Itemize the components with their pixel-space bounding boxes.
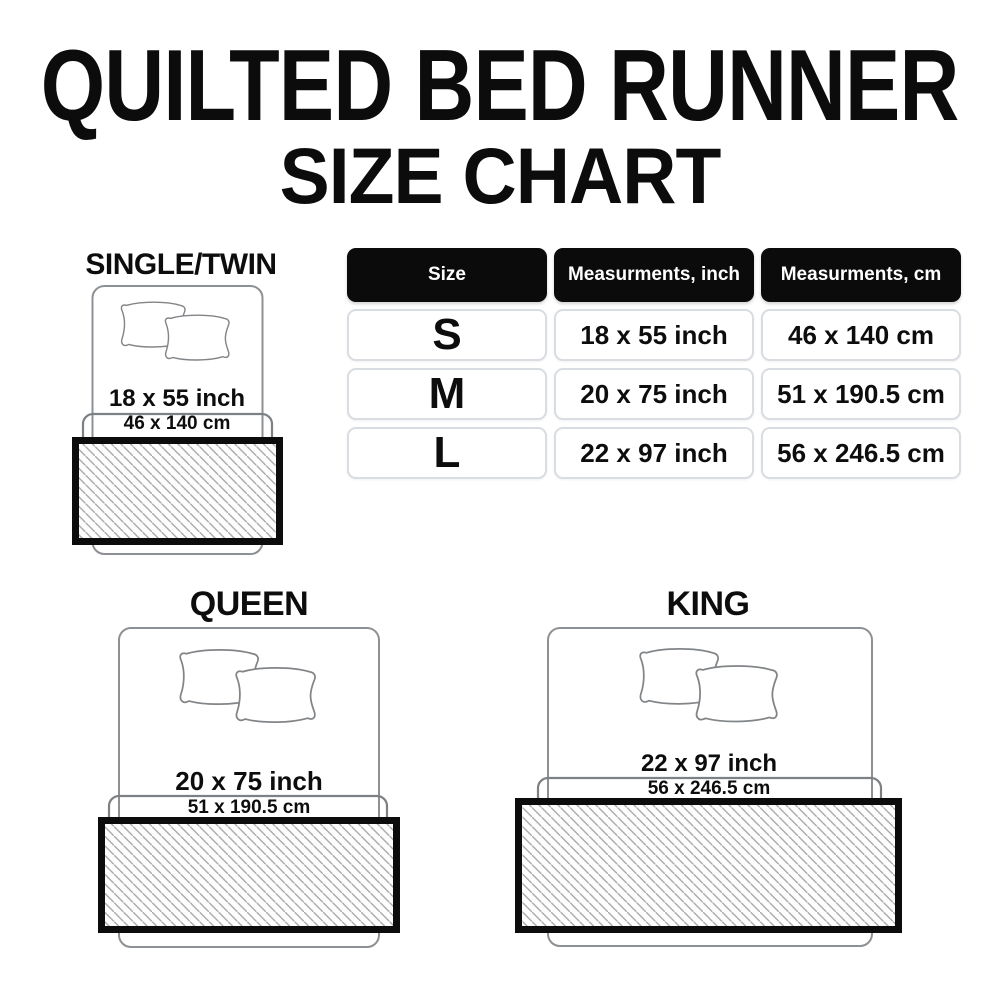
page-title-line2: SIZE CHART — [0, 136, 1000, 216]
page-title-line2-text: SIZE CHART — [280, 130, 721, 222]
page-title-line1: QUILTED BED RUNNER — [0, 30, 1000, 142]
cell-inch-m: 20 x 75 inch — [554, 368, 754, 420]
cell-size-m: M — [347, 368, 547, 420]
bed-runner-hatched — [76, 441, 280, 542]
queen-label: QUEEN — [99, 585, 399, 623]
cell-cm-m: 51 x 190.5 cm — [761, 368, 961, 420]
pillow-icon — [696, 666, 777, 722]
cell-inch-l: 22 x 97 inch — [554, 427, 754, 479]
pillow-icon — [165, 315, 229, 360]
single-twin-inch-measurement: 18 x 55 inch — [57, 385, 297, 413]
queen-cm-measurement: 51 x 190.5 cm — [99, 796, 399, 820]
header-cell-size: Size — [347, 248, 547, 302]
king-inch-measurement: 22 x 97 inch — [559, 750, 859, 778]
cell-cm-l: 56 x 246.5 cm — [761, 427, 961, 479]
king-label: KING — [558, 585, 858, 623]
single-twin-label: SINGLE/TWIN — [31, 246, 331, 284]
queen-inch-measurement: 20 x 75 inch — [99, 767, 399, 795]
bed-runner-hatched — [102, 821, 397, 930]
header-cell-inch: Measurments, inch — [554, 248, 754, 302]
size-chart-page: QUILTED BED RUNNER SIZE CHART SINGLE/TWI… — [0, 0, 1000, 1000]
king-cm-measurement: 56 x 246.5 cm — [559, 777, 859, 801]
header-cell-cm: Measurments, cm — [761, 248, 961, 302]
cell-cm-s: 46 x 140 cm — [761, 309, 961, 361]
cell-inch-s: 18 x 55 inch — [554, 309, 754, 361]
single-twin-cm-measurement: 46 x 140 cm — [57, 412, 297, 436]
cell-size-l: L — [347, 427, 547, 479]
size-table: Size Measurments, inch Measurments, cm S… — [347, 248, 961, 479]
page-title-line1-text: QUILTED BED RUNNER — [41, 29, 959, 144]
cell-size-s: S — [347, 309, 547, 361]
pillow-icon — [236, 668, 315, 722]
bed-runner-hatched — [519, 802, 899, 930]
